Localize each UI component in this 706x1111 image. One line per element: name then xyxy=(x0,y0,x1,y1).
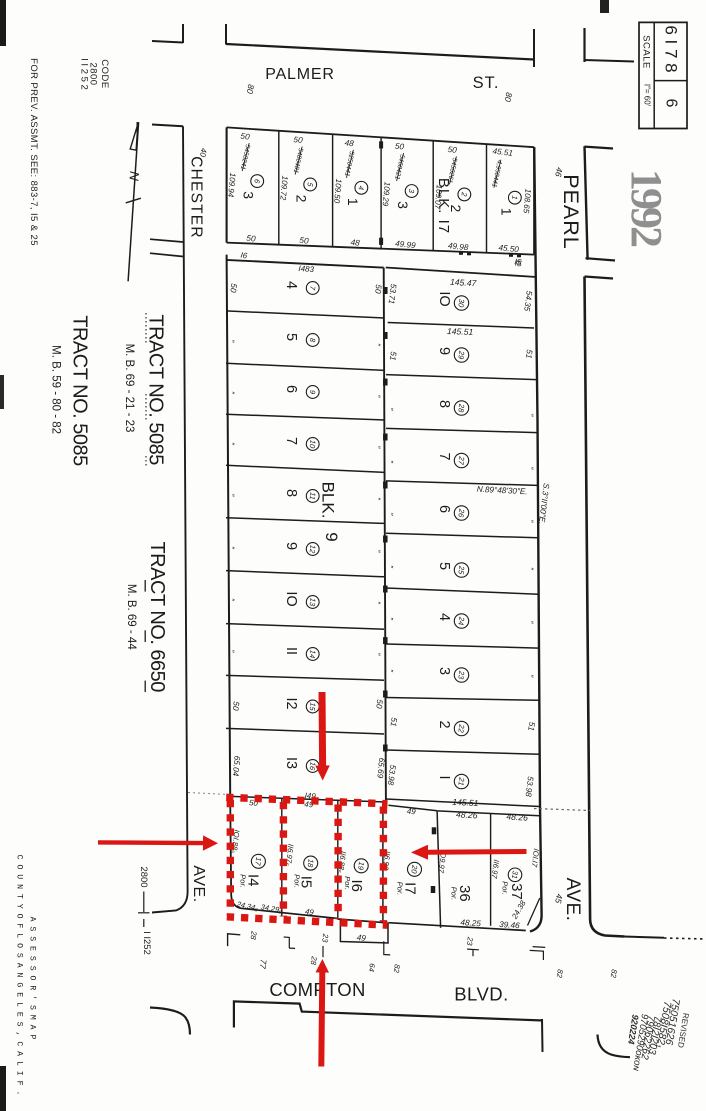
svg-text:″: ″ xyxy=(526,413,535,418)
svg-text:24.34₅: 24.34₅ xyxy=(235,899,259,912)
svg-text:″: ″ xyxy=(373,497,382,502)
svg-text:″: ″ xyxy=(373,343,382,348)
svg-text:145.47: 145.47 xyxy=(450,277,478,288)
svg-text:49: 49 xyxy=(356,933,366,943)
svg-text:Por.: Por. xyxy=(450,887,459,901)
svg-text:53.71: 53.71 xyxy=(387,283,398,304)
svg-text:80: 80 xyxy=(503,91,515,102)
svg-text:50: 50 xyxy=(299,236,309,246)
svg-text:54.35: 54.35 xyxy=(522,290,533,312)
svg-text:BLK. I7: BLK. I7 xyxy=(435,178,452,234)
svg-text:145.51: 145.51 xyxy=(447,326,474,337)
svg-text:12: 12 xyxy=(308,544,318,553)
svg-text:Por.: Por. xyxy=(395,882,404,896)
svg-text:29: 29 xyxy=(456,349,466,359)
svg-text:SCALE: SCALE xyxy=(640,35,651,69)
svg-text:TRACT NO. 6650: TRACT NO. 6650 xyxy=(146,541,168,692)
svg-text:5: 5 xyxy=(283,333,299,341)
svg-text:8: 8 xyxy=(308,337,318,343)
svg-text:4: 4 xyxy=(436,613,452,621)
svg-text:TRACT NO. 5085: TRACT NO. 5085 xyxy=(144,314,166,465)
svg-text:″: ″ xyxy=(227,649,236,654)
svg-text:23: 23 xyxy=(320,932,330,943)
svg-text:I483: I483 xyxy=(298,264,315,274)
svg-text:50: 50 xyxy=(240,132,251,142)
svg-text:17: 17 xyxy=(253,857,263,867)
svg-text:7: 7 xyxy=(308,285,318,291)
svg-text:I I252: I I252 xyxy=(141,931,152,955)
svg-text:31: 31 xyxy=(510,870,520,879)
svg-text:50: 50 xyxy=(231,701,241,711)
svg-text:Por.: Por. xyxy=(292,874,301,888)
svg-text:51: 51 xyxy=(388,351,398,361)
svg-text:6: 6 xyxy=(283,385,299,393)
svg-text:5250441: 5250441 xyxy=(343,150,355,177)
svg-text:50: 50 xyxy=(228,283,238,293)
svg-text:1: 1 xyxy=(345,198,361,206)
svg-text:5460421: 5460421 xyxy=(393,154,405,181)
svg-text:27: 27 xyxy=(456,455,466,466)
svg-text:19: 19 xyxy=(356,861,366,870)
svg-text:15: 15 xyxy=(308,702,318,712)
svg-text:″: ″ xyxy=(373,652,382,657)
svg-text:6 I 7 8: 6 I 7 8 xyxy=(662,25,681,72)
svg-text:M. B. 69 - 21 - 23: M. B. 69 - 21 - 23 xyxy=(123,344,135,433)
svg-text:109.72: 109.72 xyxy=(278,175,289,201)
svg-text:48: 48 xyxy=(344,138,355,148)
svg-text:9: 9 xyxy=(436,347,452,355)
svg-text:48: 48 xyxy=(350,238,360,248)
svg-text:53.98: 53.98 xyxy=(524,776,535,798)
svg-text:1: 1 xyxy=(510,195,519,200)
svg-text:64: 64 xyxy=(367,963,377,972)
svg-text:″: ″ xyxy=(385,460,394,465)
svg-text:4: 4 xyxy=(356,185,365,190)
svg-text:BLVD.: BLVD. xyxy=(454,984,509,1005)
svg-text:2: 2 xyxy=(459,191,469,197)
svg-text:PEARL: PEARL xyxy=(559,174,583,250)
svg-text:5450241: 5450241 xyxy=(239,144,251,171)
svg-text:″: ″ xyxy=(385,565,394,570)
svg-text:23: 23 xyxy=(465,935,475,946)
svg-text:51: 51 xyxy=(389,717,399,727)
svg-text:8: 8 xyxy=(436,400,452,408)
svg-text:2: 2 xyxy=(294,195,310,203)
svg-text:21: 21 xyxy=(456,776,466,786)
svg-text:PALMER: PALMER xyxy=(265,66,334,83)
svg-text:109.29: 109.29 xyxy=(381,181,392,207)
svg-text:7: 7 xyxy=(436,452,452,460)
svg-text:28: 28 xyxy=(456,402,466,413)
svg-text:82: 82 xyxy=(555,969,565,979)
svg-text:6: 6 xyxy=(252,179,262,185)
svg-text:50: 50 xyxy=(394,141,405,151)
svg-text:11: 11 xyxy=(308,492,318,501)
svg-text:″: ″ xyxy=(526,466,535,471)
svg-text:9: 9 xyxy=(308,389,317,394)
svg-text:18: 18 xyxy=(306,858,316,868)
svg-text:28: 28 xyxy=(249,930,259,941)
svg-text:22: 22 xyxy=(456,723,466,733)
svg-text:50: 50 xyxy=(447,145,458,155)
svg-text:50: 50 xyxy=(246,234,256,244)
svg-text:24: 24 xyxy=(456,615,466,625)
svg-text:108.65: 108.65 xyxy=(521,188,532,214)
svg-text:4: 4 xyxy=(283,281,299,289)
svg-text:I6: I6 xyxy=(240,251,248,261)
svg-text:145.51: 145.51 xyxy=(452,797,479,808)
svg-text:I2: I2 xyxy=(283,697,299,709)
svg-text:7: 7 xyxy=(283,437,299,445)
svg-text:48.26: 48.26 xyxy=(506,811,528,822)
svg-text:48.26: 48.26 xyxy=(456,809,478,820)
svg-text:″: ″ xyxy=(373,394,382,399)
svg-text:AVE.: AVE. xyxy=(562,878,583,922)
svg-text:3: 3 xyxy=(395,201,411,209)
svg-text:BLK.: BLK. xyxy=(318,482,337,519)
svg-text:″: ″ xyxy=(526,620,535,625)
svg-text:49: 49 xyxy=(406,807,416,817)
svg-text:″: ″ xyxy=(385,407,394,412)
svg-text:6: 6 xyxy=(663,99,680,108)
svg-text:24.38: 24.38 xyxy=(510,898,528,921)
svg-text:″: ″ xyxy=(373,601,382,606)
svg-text:3: 3 xyxy=(436,667,452,675)
svg-text:82: 82 xyxy=(392,964,402,974)
svg-text:″: ″ xyxy=(385,669,394,674)
svg-text:N: N xyxy=(126,171,142,182)
svg-text:65.04: 65.04 xyxy=(231,755,242,777)
svg-text:14: 14 xyxy=(308,649,318,658)
svg-text:34.29₅: 34.29₅ xyxy=(260,902,283,915)
svg-text:Por.: Por. xyxy=(343,876,352,890)
svg-text:″: ″ xyxy=(526,567,535,572)
svg-text:I″= 60′: I″= 60′ xyxy=(642,84,651,107)
svg-text:1: 1 xyxy=(498,208,514,216)
svg-text:6: 6 xyxy=(436,505,452,513)
svg-text:II: II xyxy=(283,647,299,655)
svg-text:C O U N T Y O F L O S A N G: C O U N T Y O F L O S A N G E L E S , C … xyxy=(15,855,24,1096)
svg-text:37: 37 xyxy=(508,883,525,900)
svg-text:″: ″ xyxy=(385,617,394,622)
svg-text:″: ″ xyxy=(385,512,394,517)
svg-text:AVE.: AVE. xyxy=(190,865,207,902)
svg-text:2: 2 xyxy=(436,720,452,728)
svg-text:30: 30 xyxy=(456,298,466,308)
svg-text:″: ″ xyxy=(526,519,535,524)
svg-text:9: 9 xyxy=(283,542,299,550)
svg-text:46: 46 xyxy=(553,166,565,177)
svg-text:″: ″ xyxy=(526,674,535,679)
svg-text:109.94: 109.94 xyxy=(226,172,237,198)
svg-text:39.46: 39.46 xyxy=(499,920,521,930)
svg-text:Por.: Por. xyxy=(500,881,509,895)
svg-text:65.69: 65.69 xyxy=(375,757,386,779)
svg-text:A S S E S S O R ' S M A P: A S S E S S O R ' S M A P xyxy=(28,917,38,1040)
svg-text:M. B. 69 - 44: M. B. 69 - 44 xyxy=(125,584,137,650)
svg-text:3: 3 xyxy=(241,191,257,199)
svg-text:″: ″ xyxy=(373,549,382,554)
svg-text:50: 50 xyxy=(293,135,304,145)
svg-text:COMPTON: COMPTON xyxy=(269,979,365,1000)
svg-text:45: 45 xyxy=(553,893,565,904)
svg-text:IOI.I7: IOI.I7 xyxy=(530,848,541,868)
svg-text:48.25: 48.25 xyxy=(460,918,482,928)
svg-text:M. B. 59 - 80 - 82: M. B. 59 - 80 - 82 xyxy=(49,345,61,434)
svg-text:53.98: 53.98 xyxy=(386,764,397,786)
svg-text:10: 10 xyxy=(308,439,318,449)
svg-text:13: 13 xyxy=(308,597,318,607)
svg-text:N.89°48′30″E.: N.89°48′30″E. xyxy=(476,485,527,497)
svg-text:50: 50 xyxy=(374,699,384,709)
svg-text:9: 9 xyxy=(322,532,341,541)
svg-text:IO: IO xyxy=(436,291,452,306)
svg-text:45.51: 45.51 xyxy=(492,147,513,158)
svg-text:25: 25 xyxy=(456,564,466,575)
svg-text:109.50: 109.50 xyxy=(332,178,343,204)
svg-text:77: 77 xyxy=(258,959,269,970)
svg-text:23: 23 xyxy=(456,669,466,680)
svg-text:8: 8 xyxy=(283,489,299,497)
svg-text:50: 50 xyxy=(373,284,383,294)
svg-text:51: 51 xyxy=(526,721,536,731)
svg-text:26: 26 xyxy=(456,507,466,518)
svg-text:3: 3 xyxy=(407,188,417,194)
svg-text:80: 80 xyxy=(245,83,257,94)
svg-text:4,950441: 4,950441 xyxy=(490,159,503,188)
svg-text:IO: IO xyxy=(283,591,299,606)
svg-text:5: 5 xyxy=(436,562,452,570)
svg-text:28: 28 xyxy=(309,955,319,966)
svg-text:TRACT NO. 5085: TRACT NO. 5085 xyxy=(68,315,90,466)
svg-text:51: 51 xyxy=(524,349,534,359)
svg-text:82: 82 xyxy=(609,969,619,979)
svg-text:ST.: ST. xyxy=(473,74,500,92)
svg-text:I: I xyxy=(436,775,452,779)
svg-text:2800: 2800 xyxy=(138,866,149,887)
svg-text:1992: 1992 xyxy=(622,169,671,247)
svg-text:CODE: CODE xyxy=(99,59,110,88)
svg-text:I3: I3 xyxy=(283,757,299,769)
svg-text:CHESTER: CHESTER xyxy=(188,156,205,238)
svg-text:FOR PREV. ASSMT. SEE: 883: FOR PREV. ASSMT. SEE: 883-7, I5 & 25 xyxy=(28,58,39,246)
svg-text:5: 5 xyxy=(305,182,315,188)
svg-text:″: ″ xyxy=(373,445,382,450)
svg-text:I I 2 5 2: I I 2 5 2 xyxy=(79,58,90,90)
svg-text:5480481: 5480481 xyxy=(292,147,304,174)
svg-text:20: 20 xyxy=(409,864,419,875)
svg-text:Por.: Por. xyxy=(238,874,247,888)
